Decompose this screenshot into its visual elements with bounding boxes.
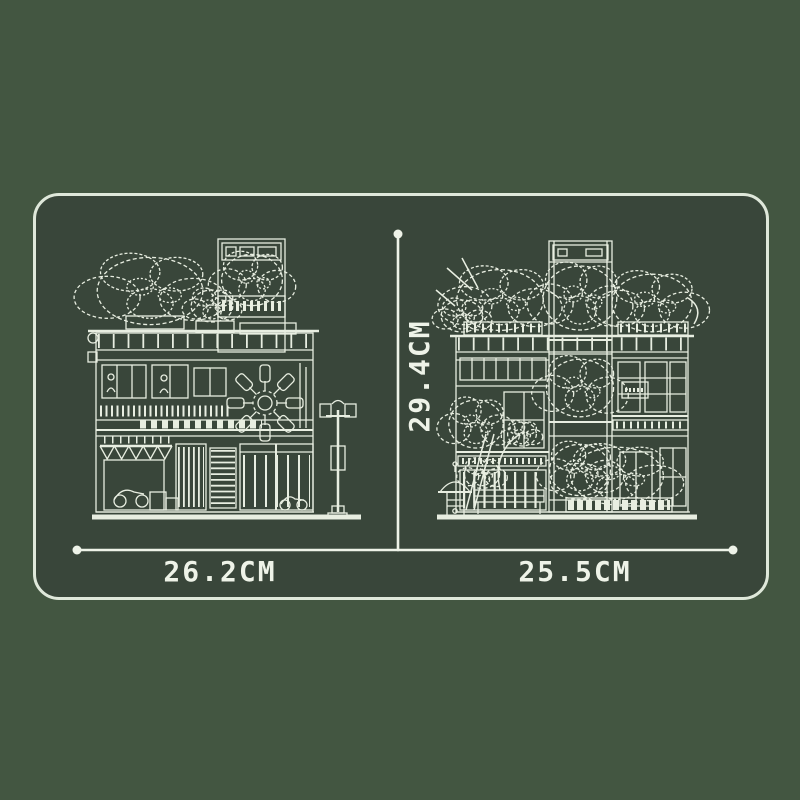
street-lamp-shape [320,401,356,518]
left-building-drawing [74,239,361,517]
height-label: 29.4CM [406,319,434,432]
dimension-endpoint-dot [394,230,403,239]
left-width-label: 26.2CM [163,558,276,586]
line-art-scene [0,0,800,800]
dimension-endpoint-dot [73,546,82,555]
dimension-endpoint-dot [729,546,738,555]
right-building-drawing [432,241,709,517]
right-width-label: 25.5CM [518,558,631,586]
